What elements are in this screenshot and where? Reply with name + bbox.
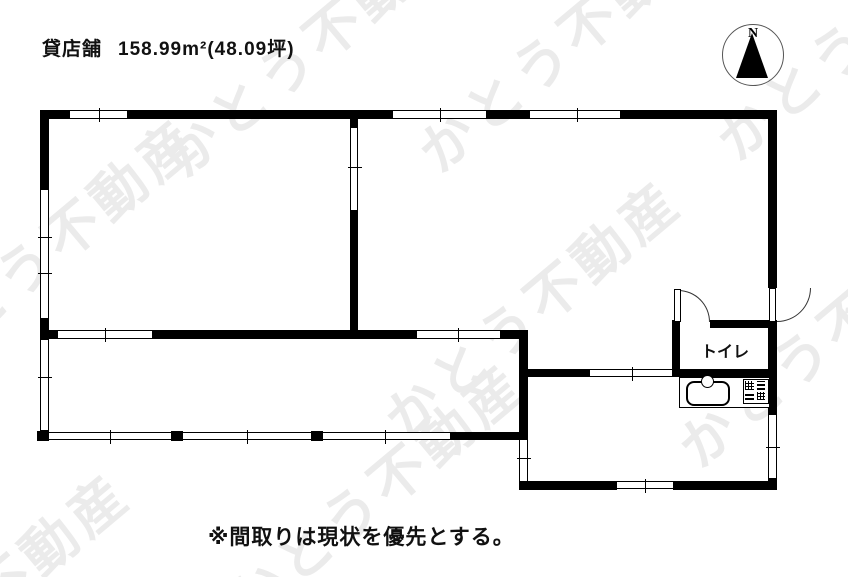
wall-segment [486,110,530,119]
note-text: ※間取りは現状を優先とする。 [208,521,515,551]
window-symbol [530,110,620,119]
window-symbol [393,110,486,119]
window-symbol [617,481,673,489]
window-tick [348,167,362,168]
window-symbol [70,110,127,119]
window-tick [38,237,52,238]
window-tick [105,328,106,342]
window-post [171,431,183,441]
wall-segment-toilet [672,320,680,377]
window-symbol [49,432,171,440]
entrance-door-leaf [769,288,776,322]
window-tick [110,430,111,444]
watermark-text: かとう不動産 [0,96,214,393]
floor-plan-page: かとう不動産 かとう不動産 かとう不動産 かとう不動産 かとう不動産 かとう不動… [0,0,848,577]
toilet-door-swing-icon [678,290,710,322]
faucet-icon [701,375,714,388]
window-symbol [40,340,49,430]
stove-burner [745,381,754,390]
wall-segment [350,119,358,128]
wall-segment-toilet [710,320,777,328]
window-symbol [183,432,311,440]
toilet-door-leaf [674,289,681,322]
wall-segment [620,110,777,119]
window-symbol [768,415,777,478]
compass-north-label: N [723,26,783,42]
wall-segment [40,330,58,339]
wall-segment [528,369,590,377]
window-tick [38,273,52,274]
window-tick [385,430,386,444]
window-tick [766,447,780,448]
wall-segment [519,339,528,432]
window-tick [645,479,646,493]
wall-segment [673,481,777,490]
stove-burner [757,392,765,400]
north-compass: N [722,24,784,86]
window-symbol [590,369,672,377]
window-symbol [58,330,152,339]
wall-segment [450,432,528,440]
wall-segment [127,110,393,119]
wall-segment-toilet [672,369,777,377]
window-tick [577,108,578,122]
room-label-toilet: トイレ [680,338,770,362]
window-tick [458,328,459,342]
window-tick [247,430,248,444]
wall-segment [519,481,617,490]
page-title: 貸店舗158.99m²(48.09坪) [42,34,295,61]
wall-segment [500,330,528,339]
window-symbol [519,440,528,481]
window-post [37,431,49,441]
watermark-text: かとう不動産 [658,186,848,483]
window-symbol [350,128,358,210]
stove-icon [743,379,769,404]
window-post [311,431,323,441]
window-symbol [417,330,500,339]
watermark-text: かとう不動産 [398,0,730,187]
stove-grill [745,392,754,400]
wall-segment [152,330,417,339]
window-tick [632,367,633,381]
window-symbol [323,432,450,440]
property-type-label: 貸店舗 [42,39,102,60]
window-tick [517,458,531,459]
wall-segment [768,110,777,288]
window-tick [99,108,100,122]
window-tick [38,377,52,378]
area-value: 158.99m²(48.09坪) [118,39,295,60]
watermark-text: かとう不動産 [0,451,145,577]
wall-segment [40,110,49,190]
window-symbol [40,190,49,318]
stove-grill [757,381,765,390]
wall-segment [350,210,358,339]
window-tick [440,108,441,122]
